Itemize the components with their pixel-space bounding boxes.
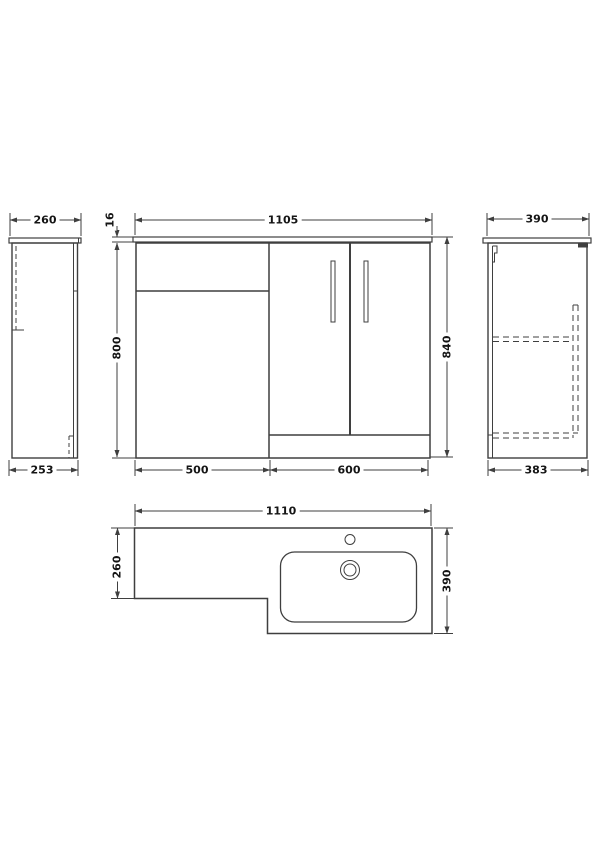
- basin-waste-icon: [344, 564, 356, 576]
- dim-label-right-unit-width: 600: [335, 464, 364, 477]
- dim-label-worktop-thickness: 16: [104, 209, 117, 230]
- door-handle-icon: [331, 261, 335, 322]
- basin-unit-side-body: [488, 243, 587, 458]
- dim-label-left-unit-width: 500: [183, 464, 212, 477]
- technical-drawing-page: 260 253 1105 16 800 840 500 600 390 383 …: [0, 0, 600, 849]
- technical-drawing-canvas: [0, 0, 600, 849]
- worktop-side-right: [483, 238, 591, 243]
- dim-label-right-side-depth-bottom: 383: [522, 464, 551, 477]
- door-handle-icon: [364, 261, 368, 322]
- right-side-view: [483, 213, 591, 476]
- door-edge-block: [578, 244, 588, 248]
- basin-bowl: [281, 552, 417, 622]
- front-view: [112, 213, 453, 476]
- dim-label-left-side-width-bottom: 253: [28, 464, 57, 477]
- dim-label-overall-height: 840: [441, 333, 454, 362]
- worktop-plan-outline: [135, 528, 433, 634]
- dim-label-cabinet-height: 800: [111, 334, 124, 363]
- dim-label-front-overall-width: 1105: [265, 214, 302, 227]
- cabinet-front-outline: [136, 243, 430, 458]
- dim-label-left-side-width-top: 260: [31, 214, 60, 227]
- basin-waste-icon: [341, 561, 360, 580]
- hinge-icon: [493, 246, 498, 262]
- left-side-view: [9, 213, 81, 476]
- tap-hole-icon: [345, 535, 355, 545]
- dim-label-right-side-depth-top: 390: [523, 213, 552, 226]
- dim-label-plan-overall-width: 1110: [263, 505, 300, 518]
- worktop-side: [9, 238, 81, 243]
- worktop-front: [133, 237, 432, 242]
- wc-unit-side-body: [12, 243, 78, 458]
- plan-view: [111, 504, 453, 634]
- dim-label-plan-right-depth: 390: [441, 567, 454, 596]
- dim-label-plan-left-depth: 260: [111, 553, 124, 582]
